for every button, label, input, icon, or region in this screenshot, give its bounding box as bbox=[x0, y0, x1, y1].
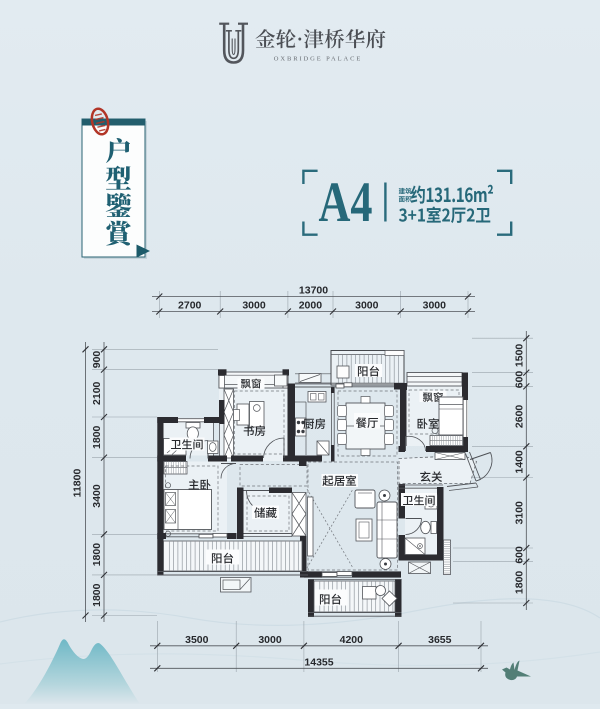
svg-text:11800: 11800 bbox=[72, 469, 84, 498]
svg-text:2000: 2000 bbox=[299, 300, 323, 312]
svg-text:3500: 3500 bbox=[185, 634, 209, 646]
svg-text:1800: 1800 bbox=[514, 571, 526, 595]
svg-text:1800: 1800 bbox=[91, 425, 103, 449]
svg-text:3400: 3400 bbox=[91, 484, 103, 508]
svg-text:3100: 3100 bbox=[514, 501, 526, 525]
svg-text:600: 600 bbox=[514, 546, 526, 564]
svg-text:2700: 2700 bbox=[178, 300, 202, 312]
svg-text:900: 900 bbox=[91, 351, 103, 369]
svg-text:4200: 4200 bbox=[340, 634, 364, 646]
svg-text:1800: 1800 bbox=[91, 583, 103, 607]
svg-text:1400: 1400 bbox=[514, 450, 526, 474]
svg-text:13700: 13700 bbox=[299, 285, 328, 297]
svg-text:A4: A4 bbox=[319, 171, 373, 234]
svg-text:OXBRIDGE PALACE: OXBRIDGE PALACE bbox=[274, 56, 362, 63]
svg-text:600: 600 bbox=[514, 371, 526, 389]
svg-text:1500: 1500 bbox=[514, 344, 526, 368]
svg-text:1800: 1800 bbox=[91, 543, 103, 567]
svg-text:3000: 3000 bbox=[242, 300, 266, 312]
svg-text:14355: 14355 bbox=[304, 656, 333, 668]
svg-text:3000: 3000 bbox=[423, 300, 447, 312]
svg-text:3655: 3655 bbox=[428, 634, 452, 646]
svg-text:2600: 2600 bbox=[514, 405, 526, 429]
svg-text:2100: 2100 bbox=[91, 381, 103, 405]
svg-text:3000: 3000 bbox=[258, 634, 282, 646]
svg-text:3000: 3000 bbox=[355, 300, 379, 312]
